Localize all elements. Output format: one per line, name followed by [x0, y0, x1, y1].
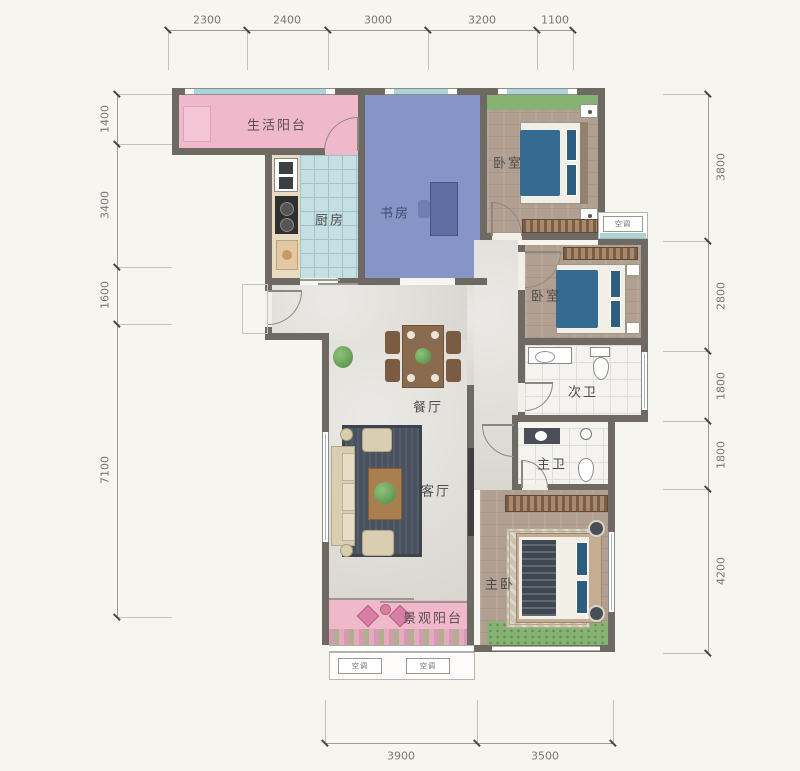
dim-ext: [117, 94, 172, 95]
dim-left-1: 3400: [99, 191, 112, 219]
ac-platform-label: 空调: [603, 216, 643, 232]
door-leaf: [482, 424, 514, 426]
window: [185, 88, 335, 95]
dim-ext: [663, 351, 708, 352]
stove-icon: [275, 196, 298, 234]
dim-ext: [537, 30, 538, 70]
nightstand-icon: [588, 605, 605, 622]
dim-ext: [663, 241, 708, 242]
ac-platform-label: 空调: [338, 658, 382, 674]
plant-icon: [333, 346, 353, 368]
label-kitchen: 厨房: [315, 210, 345, 229]
dim-line-bottom: [325, 743, 613, 744]
door-opening: [518, 252, 525, 290]
plant-icon: [374, 482, 396, 504]
nightstand-icon: [626, 322, 640, 334]
dim-line-right: [708, 94, 709, 653]
dim-ext: [328, 30, 329, 70]
dim-ext: [477, 700, 478, 743]
wardrobe-icon: [505, 495, 608, 512]
wardrobe-icon: [563, 247, 638, 260]
wall: [265, 278, 300, 285]
dim-ext: [663, 94, 708, 95]
dim-ext: [663, 653, 708, 654]
wall: [455, 278, 487, 285]
dim-ext: [428, 30, 429, 70]
washer-icon: [183, 106, 211, 142]
sliding-door: [318, 283, 358, 285]
door-leaf: [357, 117, 359, 151]
entry-step: [242, 284, 268, 334]
dim-left-2: 1600: [99, 281, 112, 309]
chair-icon: [385, 331, 400, 354]
kitchen-prep-counter: [276, 240, 298, 270]
wall: [480, 88, 487, 240]
dim-right-2: 1800: [715, 372, 728, 400]
pillow-icon: [566, 129, 577, 161]
door-leaf: [525, 382, 553, 384]
bed-duvet: [556, 270, 598, 328]
balcony-railing: [329, 645, 474, 652]
floor-plan: 空调 空调 空调 生活阳台 厨房 书房 卧室 卧室 次卫 主卫 餐厅 客厅 主卧…: [0, 0, 800, 771]
dim-top-4: 1100: [541, 14, 569, 27]
ac-platform-label: 空调: [406, 658, 450, 674]
window: [385, 88, 457, 95]
ac-label-text: 空调: [352, 661, 368, 671]
wall: [525, 338, 641, 345]
hall-floor: [467, 285, 474, 385]
dim-line-left: [117, 94, 118, 617]
chair-icon: [446, 359, 461, 382]
label-dining: 餐厅: [413, 397, 443, 416]
door-leaf: [525, 251, 561, 253]
kitchen-sink-icon: [274, 158, 298, 192]
pillow-icon: [566, 164, 577, 196]
wall: [172, 148, 325, 155]
sliding-door: [300, 279, 340, 281]
entry-door-leaf: [268, 290, 302, 292]
pillow-icon: [576, 542, 588, 576]
dim-ext: [613, 700, 614, 743]
dim-bottom-0: 3900: [387, 750, 415, 763]
label-study: 书房: [380, 203, 410, 222]
dim-line-top: [168, 30, 573, 31]
dim-right-0: 3800: [715, 153, 728, 181]
chair-icon: [446, 331, 461, 354]
sink-icon: [528, 347, 572, 364]
label-bath-master: 主卫: [537, 454, 567, 473]
dim-ext: [117, 617, 172, 618]
dim-ext: [247, 30, 248, 70]
label-service-balcony: 生活阳台: [247, 115, 307, 134]
label-bath-secondary: 次卫: [568, 382, 598, 401]
toilet-tank: [590, 347, 610, 357]
window: [492, 646, 600, 651]
window: [641, 352, 648, 410]
wardrobe-icon: [522, 219, 598, 233]
wall: [548, 484, 608, 490]
bed-duvet: [520, 130, 560, 196]
wall: [265, 333, 329, 340]
dim-ext: [663, 421, 708, 422]
wall: [512, 415, 648, 422]
dim-ext: [573, 30, 574, 70]
floor-lamp-icon: [340, 544, 353, 557]
nightstand-icon: [588, 520, 605, 537]
nightstand-icon: [626, 264, 640, 276]
label-view-balcony: 景观阳台: [403, 608, 463, 627]
ac-window-strip: [600, 233, 646, 238]
window: [498, 88, 577, 95]
dim-ext: [325, 700, 326, 743]
sliding-door: [329, 598, 414, 600]
bed-duvet: [522, 540, 556, 616]
vanity-icon: [524, 428, 560, 444]
dim-left-0: 1400: [99, 105, 112, 133]
dim-ext: [168, 30, 169, 70]
dim-top-0: 2300: [193, 14, 221, 27]
dim-ext: [117, 144, 172, 145]
pillow-icon: [610, 300, 621, 328]
label-living: 客厅: [421, 481, 451, 500]
dim-ext: [117, 267, 172, 268]
door-leaf: [521, 460, 523, 488]
window: [322, 432, 329, 542]
ac-label-text: 空调: [615, 219, 631, 229]
dim-top-3: 3200: [468, 14, 496, 27]
dim-right-3: 1800: [715, 441, 728, 469]
floor-lamp-icon: [340, 428, 353, 441]
balcony-flowerbed: [329, 629, 467, 645]
wall: [518, 245, 525, 252]
dim-right-4: 4200: [715, 557, 728, 585]
nightstand-icon: [580, 104, 598, 118]
window: [608, 532, 615, 612]
wall: [365, 278, 400, 285]
pillow-icon: [576, 580, 588, 614]
shower-icon: [580, 428, 592, 440]
wall: [265, 148, 272, 291]
desk-icon: [430, 182, 458, 236]
dim-left-3: 7100: [99, 456, 112, 484]
wall: [172, 88, 179, 155]
ac-label-text: 空调: [420, 661, 436, 671]
label-bedroom2: 卧室: [531, 286, 561, 305]
armchair-icon: [362, 428, 392, 452]
desk-chair-icon: [418, 200, 430, 218]
headboard: [580, 122, 588, 204]
door-leaf: [491, 202, 493, 236]
label-master-bedroom: 主卧: [485, 574, 515, 593]
wall: [358, 95, 365, 285]
chair-icon: [385, 359, 400, 382]
sofa-icon: [331, 446, 355, 546]
wall: [522, 233, 605, 240]
dim-bottom-1: 3500: [531, 750, 559, 763]
dim-ext: [663, 489, 708, 490]
door-opening: [518, 383, 525, 412]
dim-right-1: 2800: [715, 282, 728, 310]
room-study: [365, 95, 480, 278]
wall: [518, 290, 525, 383]
armchair-icon: [362, 530, 394, 556]
pillow-icon: [610, 270, 621, 298]
dim-ext: [117, 324, 172, 325]
dim-top-1: 2400: [273, 14, 301, 27]
tv-console-icon: [468, 448, 474, 536]
label-bedroom1: 卧室: [493, 153, 523, 172]
sliding-door: [380, 601, 467, 603]
dim-top-2: 3000: [364, 14, 392, 27]
plant-icon: [415, 348, 431, 364]
